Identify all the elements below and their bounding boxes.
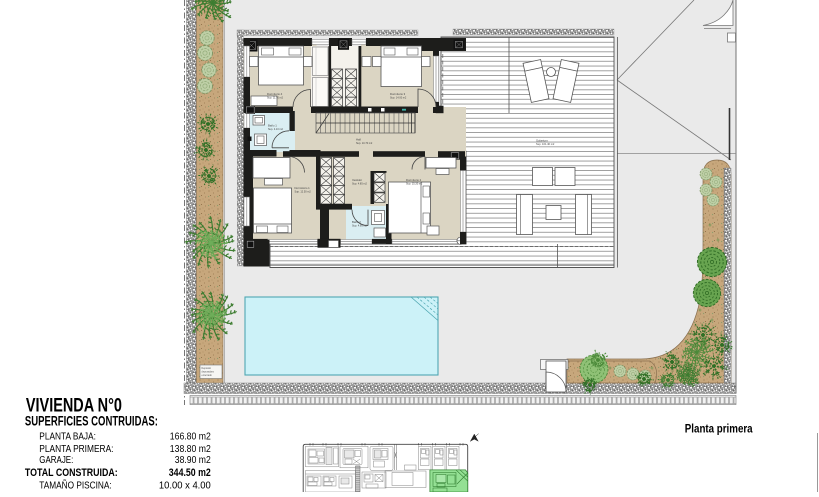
svg-text:166.80 m2: 166.80 m2	[170, 432, 211, 443]
svg-text:138.80 m2: 138.80 m2	[170, 444, 211, 455]
svg-text:Sup. 12.50 m2: Sup. 12.50 m2	[295, 190, 312, 193]
svg-text:344.50 m2: 344.50 m2	[169, 467, 211, 479]
svg-text:Sup. 4.85 m2: Sup. 4.85 m2	[352, 182, 367, 185]
svg-text:10.00 x 4.00: 10.00 x 4.00	[159, 481, 211, 492]
svg-text:Sup. 4.95 m2: Sup. 4.95 m2	[352, 224, 367, 227]
svg-text:TOTAL CONSTRUIDA:: TOTAL CONSTRUIDA:	[25, 467, 118, 479]
svg-text:enterrado: enterrado	[202, 374, 213, 377]
svg-text:Deposito: Deposito	[202, 367, 212, 370]
svg-text:GARAJE:: GARAJE:	[39, 455, 73, 466]
svg-text:Sup. 4.10 m2: Sup. 4.10 m2	[268, 128, 283, 131]
svg-text:Sup. 14.00 m2: Sup. 14.00 m2	[390, 96, 407, 99]
svg-text:depuradora: depuradora	[202, 371, 215, 374]
svg-text:38.90 m2: 38.90 m2	[175, 455, 211, 466]
svg-text:Sup. 15.20 m2: Sup. 15.20 m2	[406, 182, 423, 185]
svg-text:Planta primera: Planta primera	[685, 422, 753, 436]
svg-text:SUPERFICIES CONTRUIDAS:: SUPERFICIES CONTRUIDAS:	[25, 413, 158, 428]
svg-text:Sup. 10.70 m2: Sup. 10.70 m2	[356, 142, 373, 145]
svg-text:PLANTA BAJA:: PLANTA BAJA:	[39, 432, 96, 443]
svg-text:PLANTA PRIMERA:: PLANTA PRIMERA:	[39, 444, 113, 455]
svg-text:Sup. 101.40 m2: Sup. 101.40 m2	[536, 142, 555, 146]
svg-text:Sup. 11.70 m2: Sup. 11.70 m2	[267, 96, 284, 99]
svg-text:TAMAÑO PISCINA:: TAMAÑO PISCINA:	[39, 479, 111, 492]
svg-text:Solarium: Solarium	[536, 139, 548, 143]
